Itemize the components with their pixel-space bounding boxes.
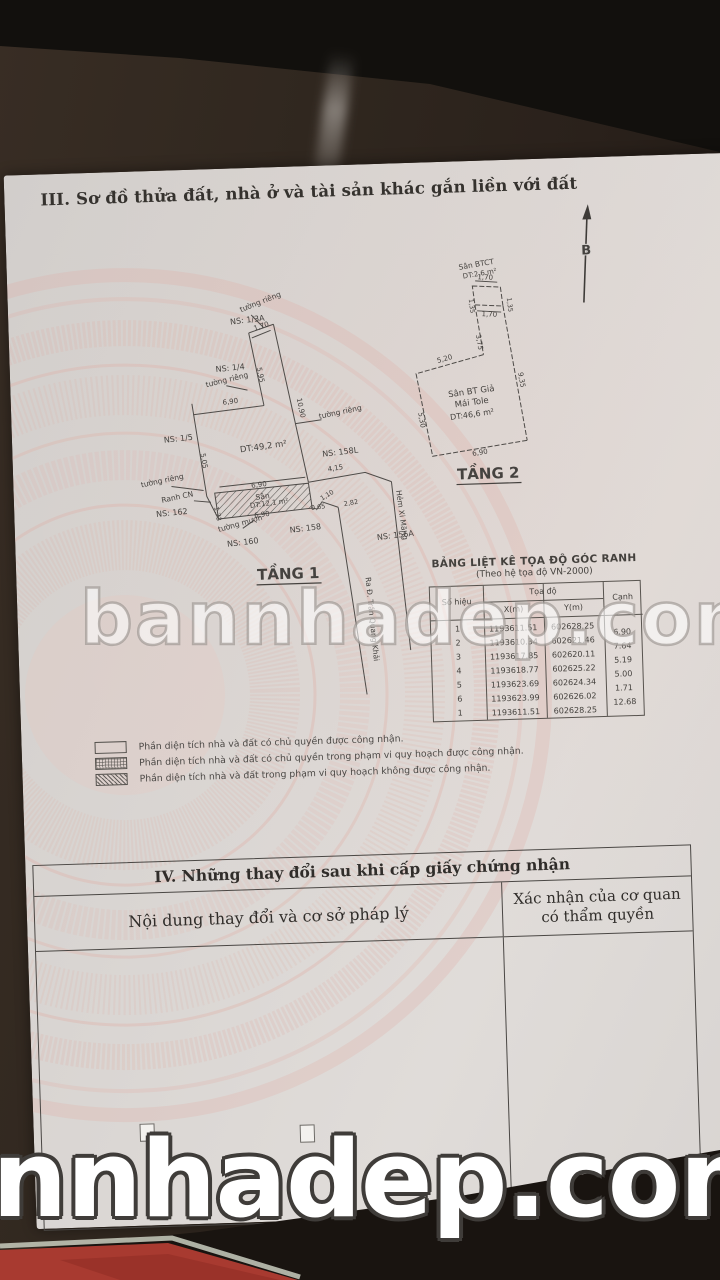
neighbor-label: NS: 158L xyxy=(322,445,359,458)
point-id: 1 xyxy=(434,709,487,719)
area-label: DT:49,2 m² xyxy=(239,439,287,455)
edge-length: 1.71 xyxy=(615,683,633,693)
dim-label: 1,35 xyxy=(505,297,515,312)
wall-label: tường riêng xyxy=(205,370,250,389)
wall-label: tường riêng xyxy=(318,403,363,421)
wall-label: tường riêng xyxy=(238,290,282,315)
legend-swatch-dotted xyxy=(95,757,127,770)
dim-label: 0,65 xyxy=(310,502,325,512)
dim-label: 6,90 xyxy=(472,447,489,458)
neighbor-label: NS: 162 xyxy=(156,507,188,519)
dim-label: 1,70 xyxy=(477,273,493,282)
dim-label: 4,15 xyxy=(327,463,344,474)
dim-label: 2,82 xyxy=(343,498,359,508)
dim-label: 6,90 xyxy=(222,397,239,407)
edge-length: 5.00 xyxy=(614,669,632,679)
point-id: 5 xyxy=(433,681,486,691)
dim-label: 1,35 xyxy=(467,298,477,313)
plan2-title: TẦNG 2 xyxy=(457,461,520,484)
dim-label: 1,73 xyxy=(212,506,223,522)
document-page: III. Sơ đồ thửa đất, nhà ở và tài sản kh… xyxy=(4,153,720,1229)
boundary-label: Ranh CN xyxy=(161,489,195,504)
dim-label: 5,95 xyxy=(255,367,266,384)
coord-x: 1193623.69 xyxy=(491,679,540,690)
legend-swatch-hatched xyxy=(95,773,127,786)
coord-x: 1193611.51 xyxy=(492,707,541,718)
coord-x: 1193623.99 xyxy=(491,693,540,704)
watermark-middle: bannhadep.com xyxy=(80,576,720,662)
dim-label: 5,20 xyxy=(436,353,453,365)
dim-label: 10,90 xyxy=(295,397,307,418)
dim-label: 3,75 xyxy=(474,334,485,351)
dim-label: 1,10 xyxy=(319,488,336,502)
plan2-dim-lines xyxy=(475,280,501,313)
legend-swatch-plain xyxy=(94,741,126,754)
plan2-labels: Sân BTCT DT:2,6 m² 1,70 1,35 1,35 1,70 3… xyxy=(411,256,528,460)
north-arrow: B xyxy=(580,204,594,302)
coord-y: 602625.22 xyxy=(552,663,596,673)
wall-label: tường riêng xyxy=(140,472,185,490)
edge-length: 12.68 xyxy=(613,697,636,707)
point-id: 6 xyxy=(433,695,486,705)
dim-label: 1,70 xyxy=(481,310,497,319)
coord-y: 602628.25 xyxy=(554,705,598,715)
neighbor-label: NS: 158 xyxy=(289,522,321,535)
north-label: B xyxy=(581,243,591,258)
coord-x: 1193618.77 xyxy=(490,665,539,676)
section4-col-confirm: Xác nhận của cơ quan có thẩm quyền xyxy=(502,876,693,936)
dim-label: 5,05 xyxy=(198,453,209,470)
coord-y: 602624.34 xyxy=(553,677,597,687)
north-arrow-head xyxy=(582,204,591,219)
point-id: 4 xyxy=(432,667,485,677)
dim-label: 5,30 xyxy=(416,412,427,429)
photo-of-land-certificate: III. Sơ đồ thửa đất, nhà ở và tài sản kh… xyxy=(0,0,720,1280)
section4-col-confirm-line2: có thẩm quyền xyxy=(541,905,654,927)
watermark-bottom: nnhadep.com xyxy=(0,1118,720,1241)
neighbor-label: NS: 1/5 xyxy=(163,433,193,445)
coord-y: 602626.02 xyxy=(553,691,597,701)
neighbor-label: NS: 160 xyxy=(227,536,259,549)
